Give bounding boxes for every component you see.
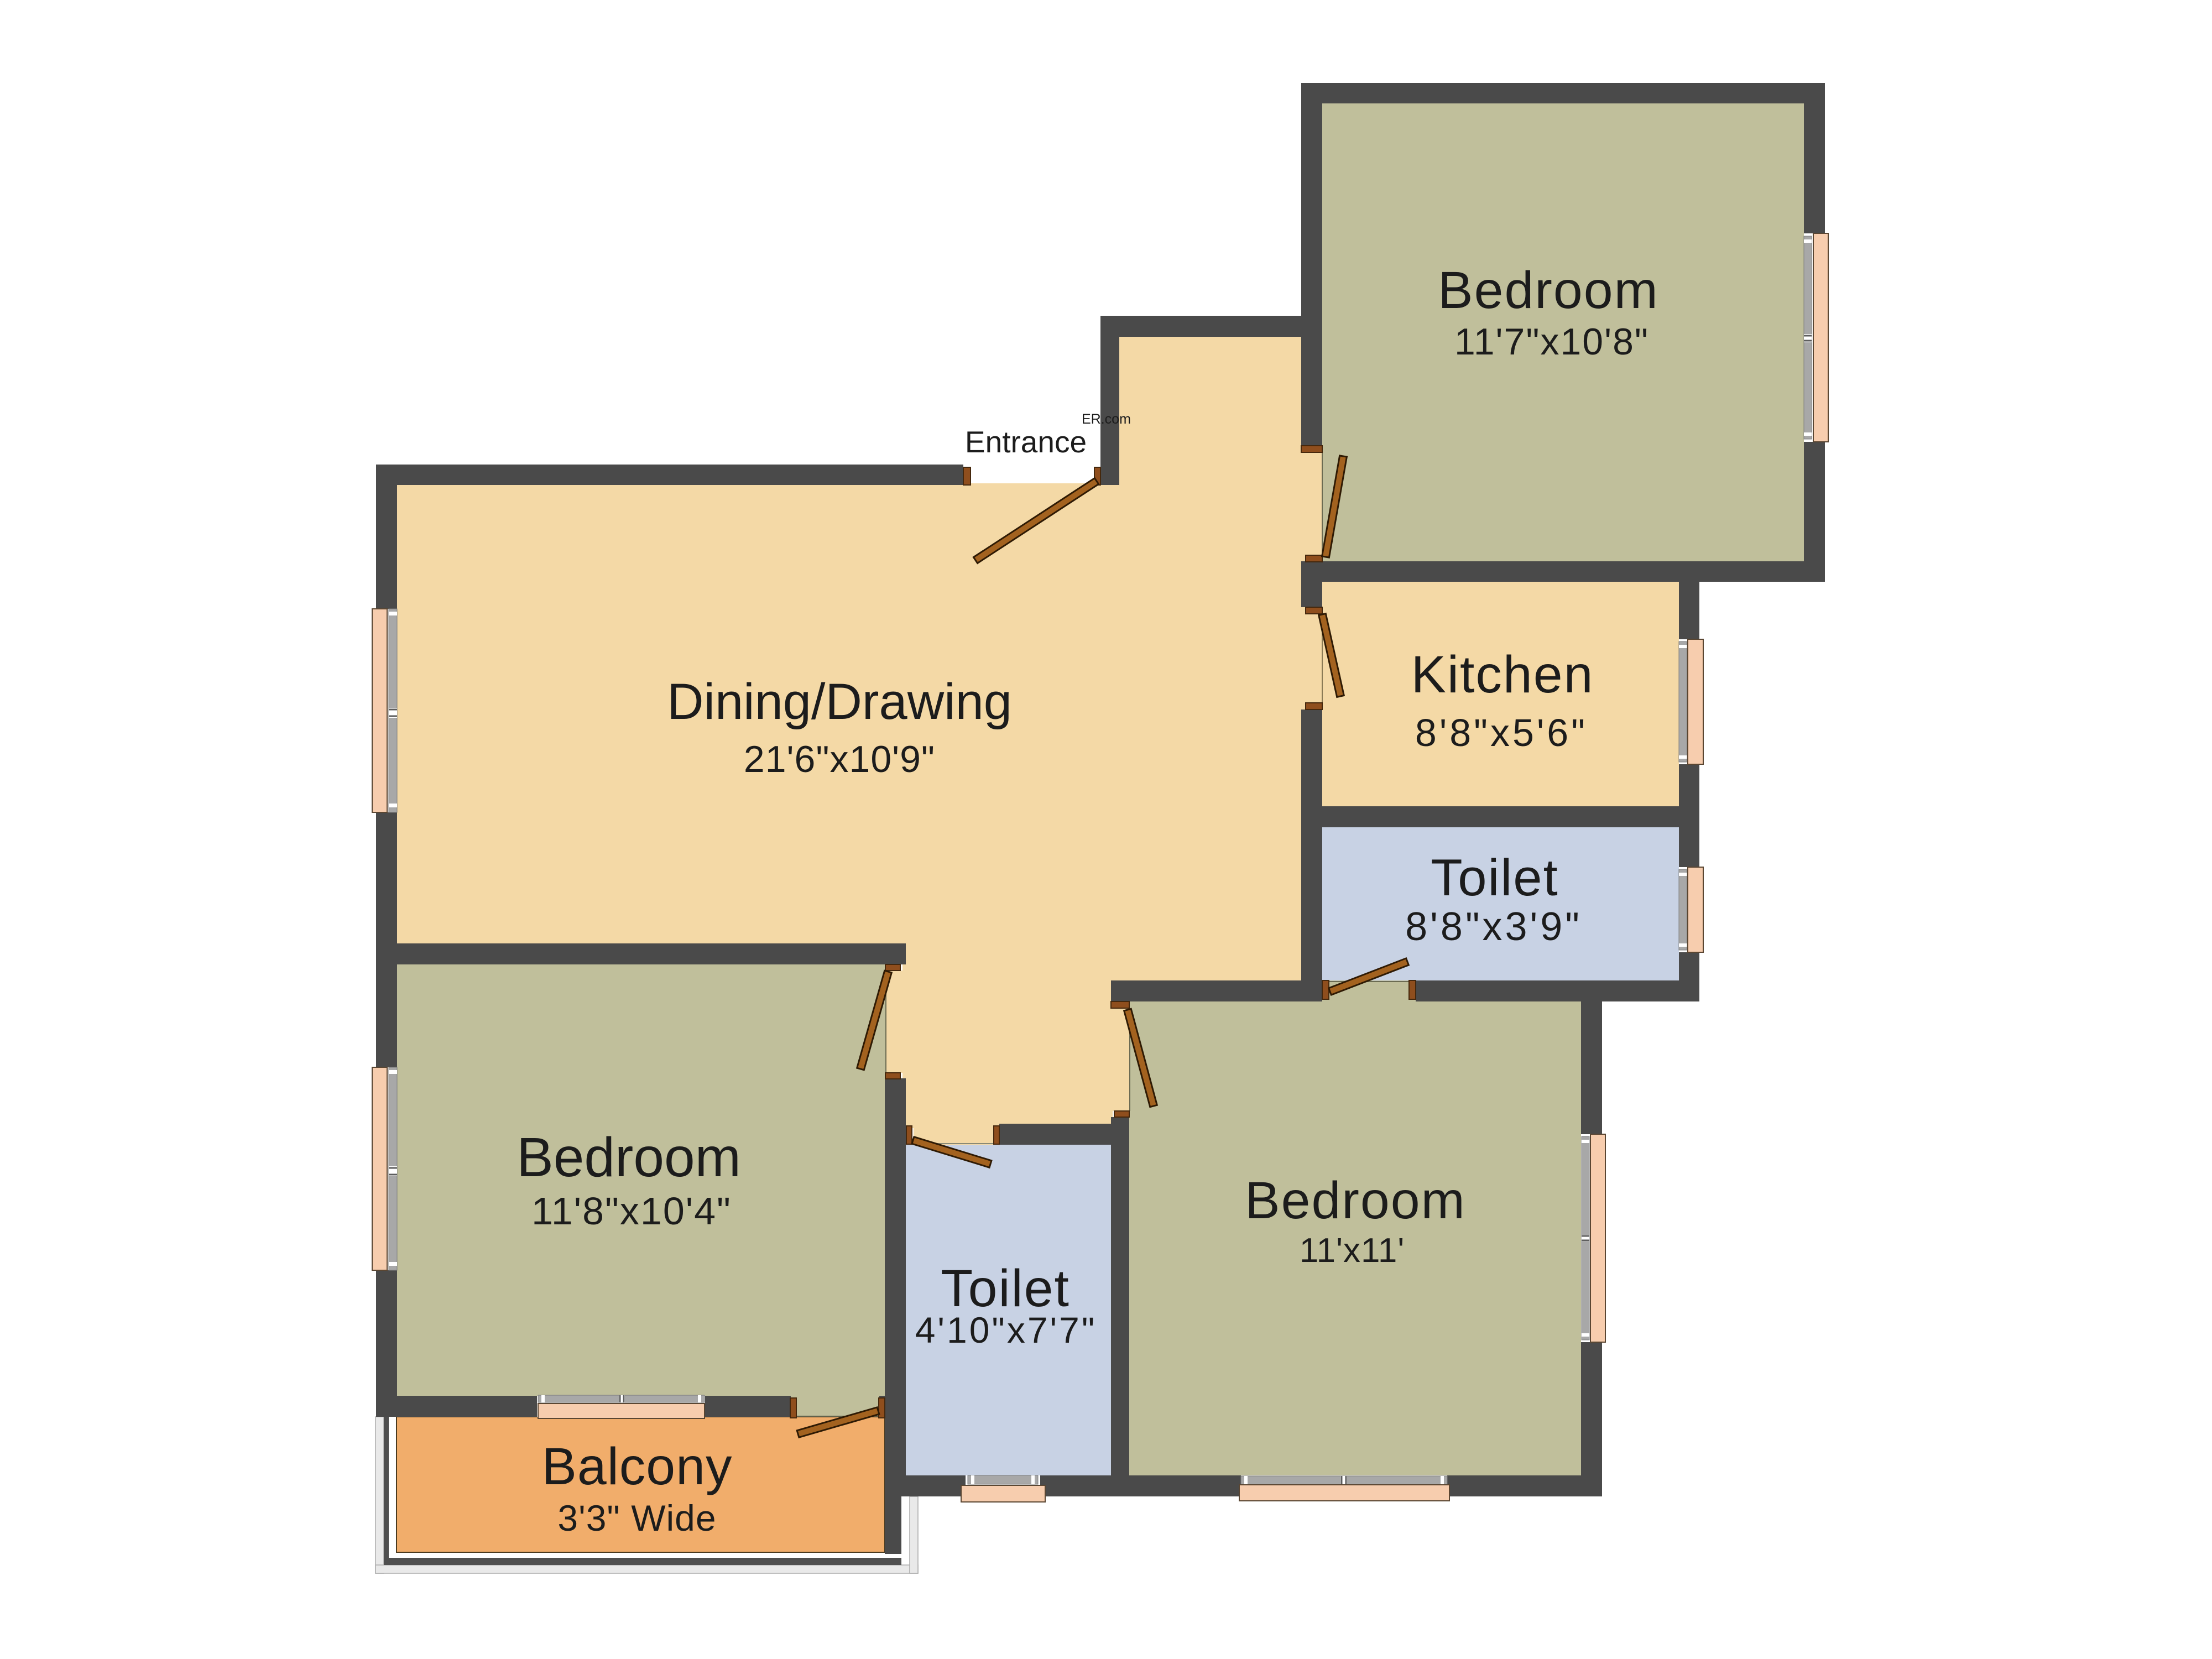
svg-text:11'x11': 11'x11' <box>1300 1232 1405 1270</box>
svg-text:Toilet: Toilet <box>1431 848 1558 906</box>
svg-text:11'8"x10'4": 11'8"x10'4" <box>531 1190 732 1233</box>
svg-text:Kitchen: Kitchen <box>1411 645 1594 704</box>
svg-text:8'8"x5'6": 8'8"x5'6" <box>1415 711 1588 754</box>
svg-text:Dining/Drawing: Dining/Drawing <box>667 674 1012 730</box>
svg-text:ER.com: ER.com <box>1082 411 1131 427</box>
svg-text:4'10"x7'7": 4'10"x7'7" <box>915 1310 1097 1350</box>
svg-text:11'7"x10'8": 11'7"x10'8" <box>1454 321 1649 363</box>
svg-text:Entrance: Entrance <box>965 425 1087 459</box>
svg-text:3'3" Wide: 3'3" Wide <box>557 1498 716 1538</box>
svg-text:Balcony: Balcony <box>542 1437 733 1496</box>
svg-text:8'8"x3'9": 8'8"x3'9" <box>1405 905 1582 949</box>
svg-text:21'6"x10'9": 21'6"x10'9" <box>744 738 935 780</box>
svg-text:Bedroom: Bedroom <box>517 1126 741 1188</box>
svg-text:Bedroom: Bedroom <box>1438 261 1658 320</box>
svg-text:Bedroom: Bedroom <box>1245 1171 1465 1230</box>
